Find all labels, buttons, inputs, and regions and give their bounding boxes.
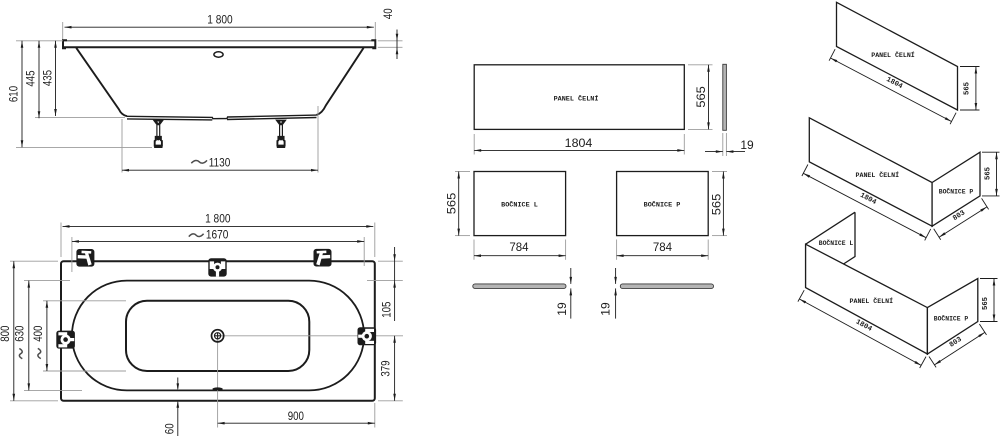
svg-text:565: 565 — [445, 192, 459, 214]
svg-text:19: 19 — [599, 302, 613, 316]
svg-text:800: 800 — [0, 325, 12, 341]
svg-text:565: 565 — [984, 167, 992, 180]
svg-text:BOČNICE P: BOČNICE P — [934, 313, 969, 322]
svg-text:565: 565 — [694, 86, 708, 108]
svg-text:630: 630 — [12, 325, 26, 341]
svg-text:BOČNICE P: BOČNICE P — [939, 186, 974, 195]
svg-text:1670: 1670 — [206, 228, 229, 242]
svg-text:565: 565 — [709, 193, 723, 215]
svg-text:784: 784 — [509, 240, 529, 254]
svg-text:60: 60 — [162, 423, 176, 434]
svg-text:1804: 1804 — [565, 136, 593, 150]
svg-text:PANEL ČELNÍ: PANEL ČELNÍ — [554, 94, 599, 104]
svg-text:PANEL ČELNÍ: PANEL ČELNÍ — [871, 50, 915, 59]
svg-text:BOČNICE P: BOČNICE P — [644, 200, 681, 210]
svg-text:PANEL ČELNÍ: PANEL ČELNÍ — [856, 170, 900, 179]
svg-text:PANEL ČELNÍ: PANEL ČELNÍ — [850, 296, 894, 305]
svg-text:565: 565 — [982, 297, 990, 310]
svg-text:784: 784 — [653, 240, 673, 254]
svg-text:565: 565 — [963, 82, 971, 95]
svg-text:1 800: 1 800 — [205, 212, 231, 226]
svg-text:BOČNICE L: BOČNICE L — [501, 200, 538, 210]
svg-text:40: 40 — [381, 8, 395, 19]
svg-text:1 800: 1 800 — [207, 12, 233, 26]
svg-text:610: 610 — [7, 86, 21, 102]
svg-text:1130: 1130 — [209, 156, 231, 170]
svg-text:900: 900 — [288, 409, 304, 423]
svg-text:400: 400 — [31, 325, 45, 341]
svg-text:445: 445 — [24, 70, 38, 86]
svg-text:105: 105 — [379, 301, 393, 317]
svg-text:435: 435 — [41, 70, 55, 86]
svg-text:19: 19 — [740, 138, 754, 152]
svg-text:379: 379 — [379, 360, 393, 376]
svg-text:19: 19 — [555, 302, 569, 316]
svg-text:BOČNICE L: BOČNICE L — [819, 238, 854, 247]
